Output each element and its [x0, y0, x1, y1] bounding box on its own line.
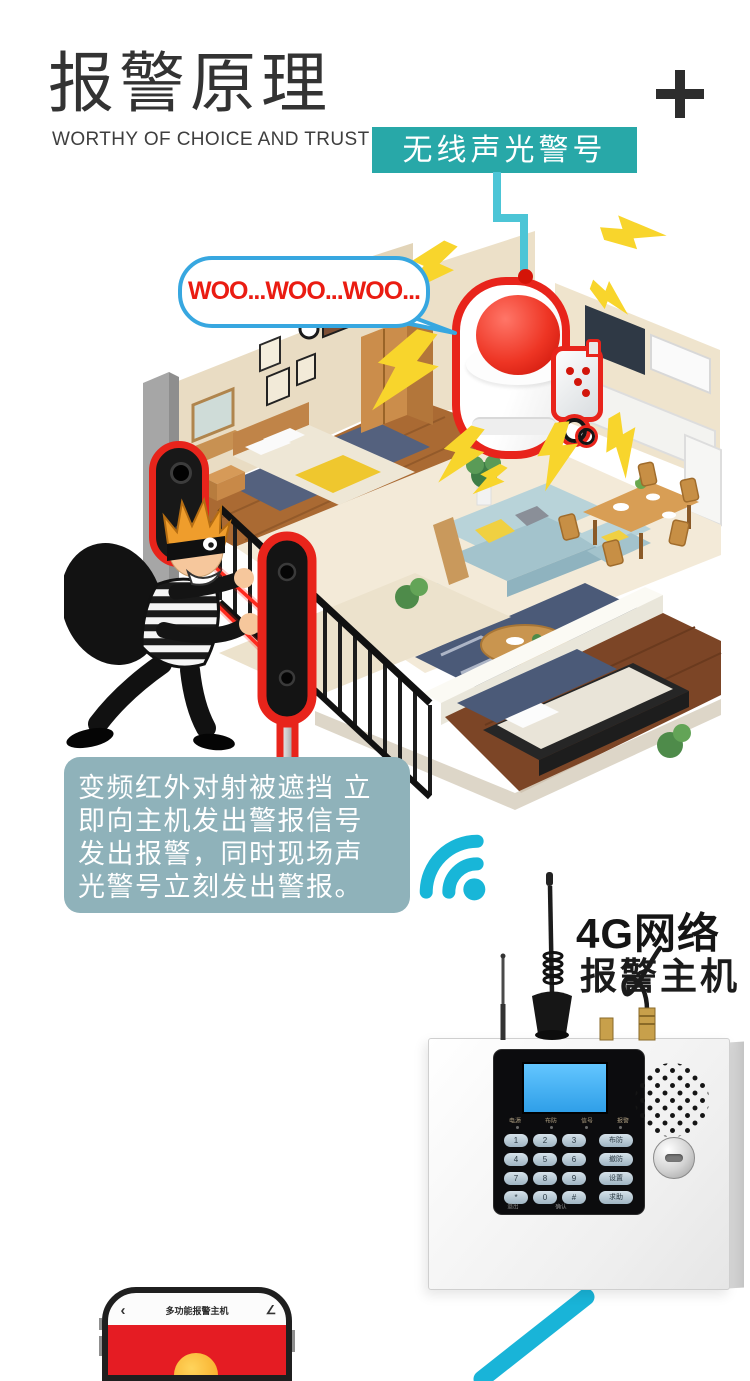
function-key: 撤防 [599, 1153, 633, 1166]
speech-bubble: WOO...WOO...WOO... [178, 256, 430, 328]
indicator-leds [516, 1126, 622, 1129]
page-subtitle: WORTHY OF CHOICE AND TRUST [52, 129, 370, 151]
page-title: 报警原理 [48, 30, 332, 126]
keypad-bottom-label: 退出 [507, 1203, 518, 1211]
host-keypad: 1 2 3 布防 4 5 6 撤防 7 8 9 设置 [504, 1134, 633, 1204]
promo-page: 报警原理 WORTHY OF CHOICE AND TRUST 无线声光警号 [0, 0, 750, 1381]
function-key: 求助 [599, 1191, 633, 1204]
phone-mockup: ‹ 多功能报警主机 ∠ [102, 1287, 292, 1381]
sma-connector [600, 1018, 613, 1040]
edit-icon: ∠ [256, 1303, 286, 1317]
keypad-key: 9 [562, 1172, 586, 1185]
keypad-key: 0 [533, 1191, 557, 1204]
remote-control [551, 346, 603, 422]
phone-side-button [99, 1318, 102, 1330]
ir-beam-sensor-bottom [250, 528, 326, 790]
app-title-bar: ‹ 多功能报警主机 ∠ [108, 1297, 286, 1323]
back-icon: ‹ [108, 1302, 138, 1319]
function-key: 设置 [599, 1172, 633, 1185]
bottom-connector-line [466, 1283, 606, 1381]
network-label-host: 报警主机 [580, 946, 740, 1000]
siren-red-dome [476, 295, 560, 375]
keyhole-slot [665, 1154, 683, 1162]
host-console: 电源 布防 信号 报警 1 2 3 布防 4 5 6 撤防 [493, 1049, 645, 1215]
keypad-key: 2 [533, 1134, 557, 1147]
phone-side-button [99, 1336, 102, 1356]
panel-side-face [728, 1041, 744, 1288]
keypad-key: 8 [533, 1172, 557, 1185]
indicator-label: 信号 [581, 1117, 593, 1126]
keypad-bottom-label: 确认 [555, 1203, 566, 1211]
burglar-cartoon [64, 492, 274, 758]
keypad-key: 1 [504, 1134, 528, 1147]
indicator-label: 电源 [509, 1117, 521, 1126]
indicator-label: 布防 [545, 1117, 557, 1126]
siren-top-knob [518, 269, 533, 284]
remote-button [582, 389, 590, 397]
keypad-key: 4 [504, 1153, 528, 1166]
lcd-screen [522, 1062, 608, 1114]
siren-bottom-band [472, 417, 556, 435]
keypad-key: 7 [504, 1172, 528, 1185]
phone-side-button [292, 1330, 295, 1352]
info-box: 变频红外对射被遮挡 立 即向主机发出警报信号 发出报警，同时现场声 光警号立刻发… [64, 757, 410, 913]
remote-button [582, 367, 590, 375]
siren-banner-label: 无线声光警号 [372, 127, 637, 173]
keypad-key: 6 [562, 1153, 586, 1166]
speaker-grille [635, 1063, 709, 1137]
remote-button [574, 378, 582, 386]
wifi-icon [415, 820, 511, 916]
sensor-lens [170, 462, 192, 484]
remote-button [566, 367, 574, 375]
keypad-key: 5 [533, 1153, 557, 1166]
keypad-key: 3 [562, 1134, 586, 1147]
plus-icon [656, 70, 704, 118]
remote-antenna [586, 339, 601, 357]
app-title: 多功能报警主机 [138, 1304, 256, 1317]
status-indicators: 电源 布防 信号 报警 [508, 1116, 630, 1126]
function-key: 布防 [599, 1134, 633, 1147]
app-round-button [174, 1353, 218, 1381]
lock-keyhole [653, 1137, 695, 1179]
alarm-host-panel: 电源 布防 信号 报警 1 2 3 布防 4 5 6 撤防 [428, 1038, 730, 1290]
remote-keyring-link [578, 428, 595, 445]
app-screen [108, 1325, 286, 1381]
indicator-label: 报警 [617, 1117, 629, 1126]
